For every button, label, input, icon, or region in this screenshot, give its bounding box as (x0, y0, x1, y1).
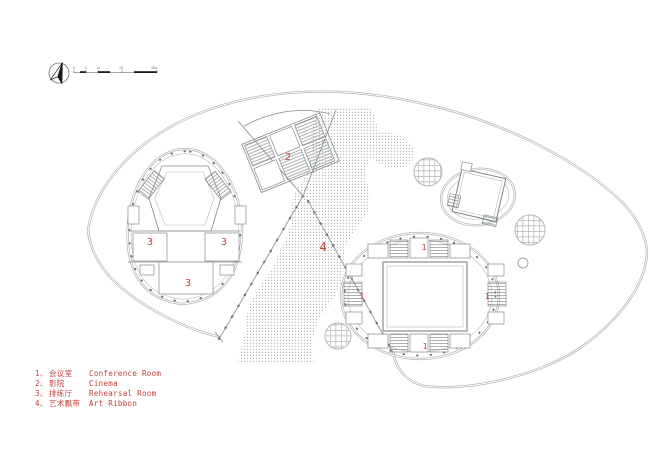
legend-number: 3、 (35, 389, 49, 399)
legend-number: 4、 (35, 399, 49, 409)
scale-label-10: 10 (96, 66, 100, 70)
legend-item-conference: 1、会议室Conference Room (35, 369, 161, 379)
scale-label-20: 20 (119, 66, 123, 70)
label-conference-right: 1 (485, 292, 490, 301)
legend-zh-label: 会议室 (49, 369, 89, 379)
legend-en-label: Art Ribbon (89, 399, 137, 408)
legend-item-rehearsal: 3、排练厅Rehearsal Room (35, 389, 161, 399)
label-rehearsal-bottom: 3 (185, 278, 191, 289)
legend-en-label: Rehearsal Room (89, 389, 156, 398)
label-conference-left: 1 (360, 292, 365, 301)
conference-block: 1 1 1 1 (341, 233, 506, 359)
legend-number: 1、 (35, 369, 49, 379)
label-rehearsal-right: 3 (221, 237, 227, 248)
legend: 1、会议室Conference Room 2、影院Cinema 3、排练厅Reh… (35, 369, 161, 409)
legend-en-label: Conference Room (89, 369, 161, 378)
legend-item-cinema: 2、影院Cinema (35, 379, 161, 389)
scale-label-0: 0 (73, 66, 75, 70)
label-rehearsal-left: 3 (147, 237, 153, 248)
legend-zh-label: 影院 (49, 379, 89, 389)
legend-en-label: Cinema (89, 379, 118, 388)
small-oval-room (437, 160, 518, 229)
scale-label-5: 5 (85, 66, 87, 70)
label-cinema: 2 (285, 152, 291, 163)
label-conference-top: 1 (422, 243, 427, 252)
scale-bar: 0 5 10 20 50m (73, 66, 157, 73)
north-arrow-icon (49, 61, 69, 84)
legend-zh-label: 艺术飘带 (49, 399, 89, 409)
label-art-ribbon: 4 (319, 240, 326, 254)
floor-plan-sheet: 2 3 3 3 (0, 0, 650, 459)
legend-number: 2、 (35, 379, 49, 389)
label-conference-bottom: 1 (423, 342, 428, 351)
scale-label-50m: 50m (151, 66, 157, 70)
rehearsal-theater: 3 3 3 (128, 149, 246, 304)
small-column-circle (518, 258, 528, 268)
legend-zh-label: 排练厅 (49, 389, 89, 399)
legend-item-art-ribbon: 4、艺术飘带Art Ribbon (35, 399, 161, 409)
